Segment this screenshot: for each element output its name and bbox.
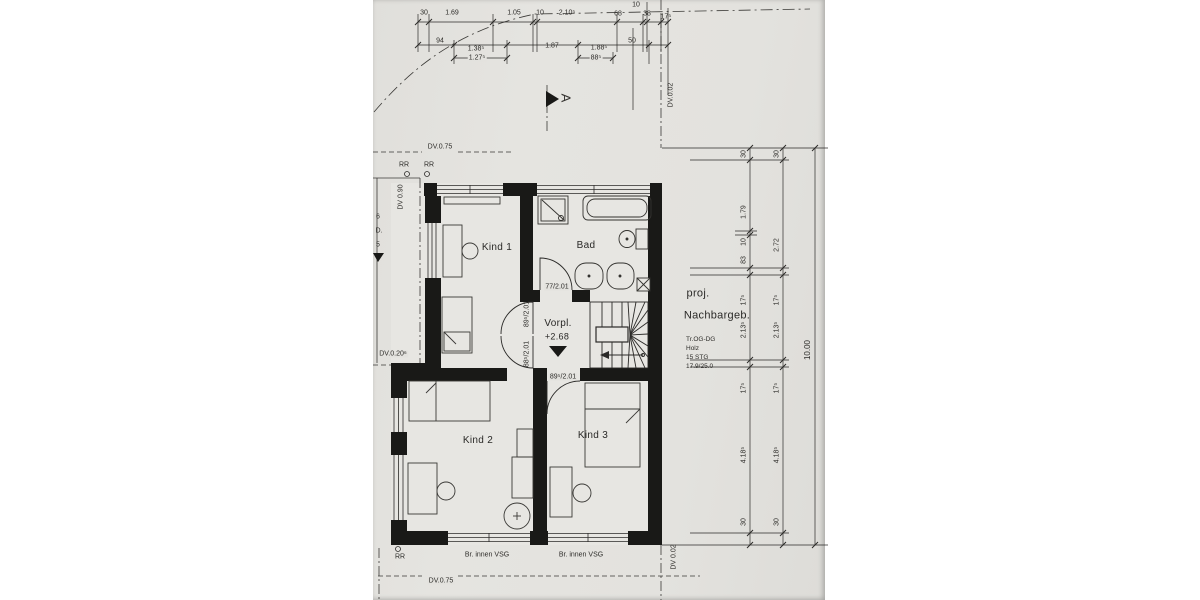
dim-label: 38 xyxy=(643,11,651,18)
level-value: +2.68 xyxy=(545,333,569,342)
dim-label: 1.79 xyxy=(741,205,748,219)
dim-label: 94 xyxy=(436,38,444,45)
dim-label: 2.10⁵ xyxy=(559,10,576,17)
dv-right-bottom-label: DV 0.02 xyxy=(671,544,678,569)
dim-label: 4.18⁵ xyxy=(741,447,748,464)
stair-note: Tr.OG-DG Holz 15 STG 17.9/25.0 xyxy=(686,335,715,371)
stair-note-line2: Holz xyxy=(686,344,715,353)
dim-label: 4.18⁵ xyxy=(774,447,781,464)
rr-label: RR xyxy=(395,554,405,561)
edge-level-triangle xyxy=(373,253,384,262)
dim-label: 10 xyxy=(632,2,640,9)
dim-label: 88⁵ xyxy=(590,55,603,62)
dim-label: 10 xyxy=(741,238,748,246)
edge-fragment: 6 xyxy=(376,214,380,221)
door-label-kind2: 88⁵/2.01 xyxy=(524,341,531,367)
dv-left-mid-label: DV.0.20⁶ xyxy=(378,351,408,358)
dim-label: 17⁵ xyxy=(661,14,672,21)
dim-label: 1.05 xyxy=(507,10,521,17)
section-arrow xyxy=(546,91,559,107)
floorplan-scan: Kind 1 Bad Vorpl. +2.68 Kind 2 Kind 3 pr… xyxy=(0,0,1200,600)
dim-label: 30 xyxy=(741,518,748,526)
door-label-bad: 77/2.01 xyxy=(544,284,569,291)
neighbor-label-line2: Nachbargeb. xyxy=(684,311,750,322)
dv-bottom-label: DV.0.75 xyxy=(428,578,455,585)
dim-label: 1.27⁵ xyxy=(468,55,487,62)
room-label-kind2: Kind 2 xyxy=(463,436,493,446)
room-label-bad: Bad xyxy=(577,241,596,251)
stair-note-line1: Tr.OG-DG xyxy=(686,335,715,344)
stair-note-line4: 17.9/25.0 xyxy=(686,362,715,371)
section-label: A xyxy=(560,94,573,103)
glass-label-left: Br. innen VSG xyxy=(465,552,509,559)
floorplan-linework xyxy=(0,0,1200,600)
dim-label: 1.87 xyxy=(545,43,559,50)
dim-label: 68 xyxy=(614,11,622,18)
dim-label: 17⁵ xyxy=(741,295,748,306)
dim-label: 50 xyxy=(628,38,636,45)
room-label-kind3: Kind 3 xyxy=(578,431,608,441)
neighbor-label-line1: proj. xyxy=(687,289,710,300)
dim-label: 17⁵ xyxy=(741,383,748,394)
dim-label: 1.38⁵ xyxy=(468,46,485,53)
dim-label: 1.88⁵ xyxy=(591,45,608,52)
rr-label: RR xyxy=(399,162,409,169)
dim-label: 30 xyxy=(741,150,748,158)
dim-label: 30 xyxy=(420,10,428,17)
edge-fragment: 5 xyxy=(376,242,380,249)
dim-label-total: 10.00 xyxy=(804,340,812,360)
dim-label: 2.13⁵ xyxy=(774,322,781,339)
room-label-kind1: Kind 1 xyxy=(482,243,512,253)
door-label-kind3: 89⁵/2.01 xyxy=(549,374,577,381)
dim-label: 17⁵ xyxy=(774,383,781,394)
dim-label: 83 xyxy=(741,256,748,264)
door-label-kind1: 89⁵/2.01 xyxy=(524,301,531,327)
dv-left-vertical-label: DV 0.90 xyxy=(398,184,405,209)
rr-label: RR xyxy=(424,162,434,169)
dim-label: 30 xyxy=(774,518,781,526)
dim-label: 10 xyxy=(536,10,544,17)
stair-note-line3: 15 STG xyxy=(686,353,715,362)
dv-top-label: DV.0.75 xyxy=(427,144,454,151)
room-label-vorplatz: Vorpl. xyxy=(544,319,571,329)
dim-label: 30 xyxy=(774,150,781,158)
dv-right-top-label: DV.0.02 xyxy=(668,83,675,108)
dim-label: 17⁵ xyxy=(774,295,781,306)
dim-label: 2.13⁵ xyxy=(741,322,748,339)
edge-fragment: D. xyxy=(376,228,383,235)
dim-label: 2.72 xyxy=(774,238,781,252)
glass-label-right: Br. innen VSG xyxy=(559,552,603,559)
dim-label: 1.69 xyxy=(445,10,459,17)
